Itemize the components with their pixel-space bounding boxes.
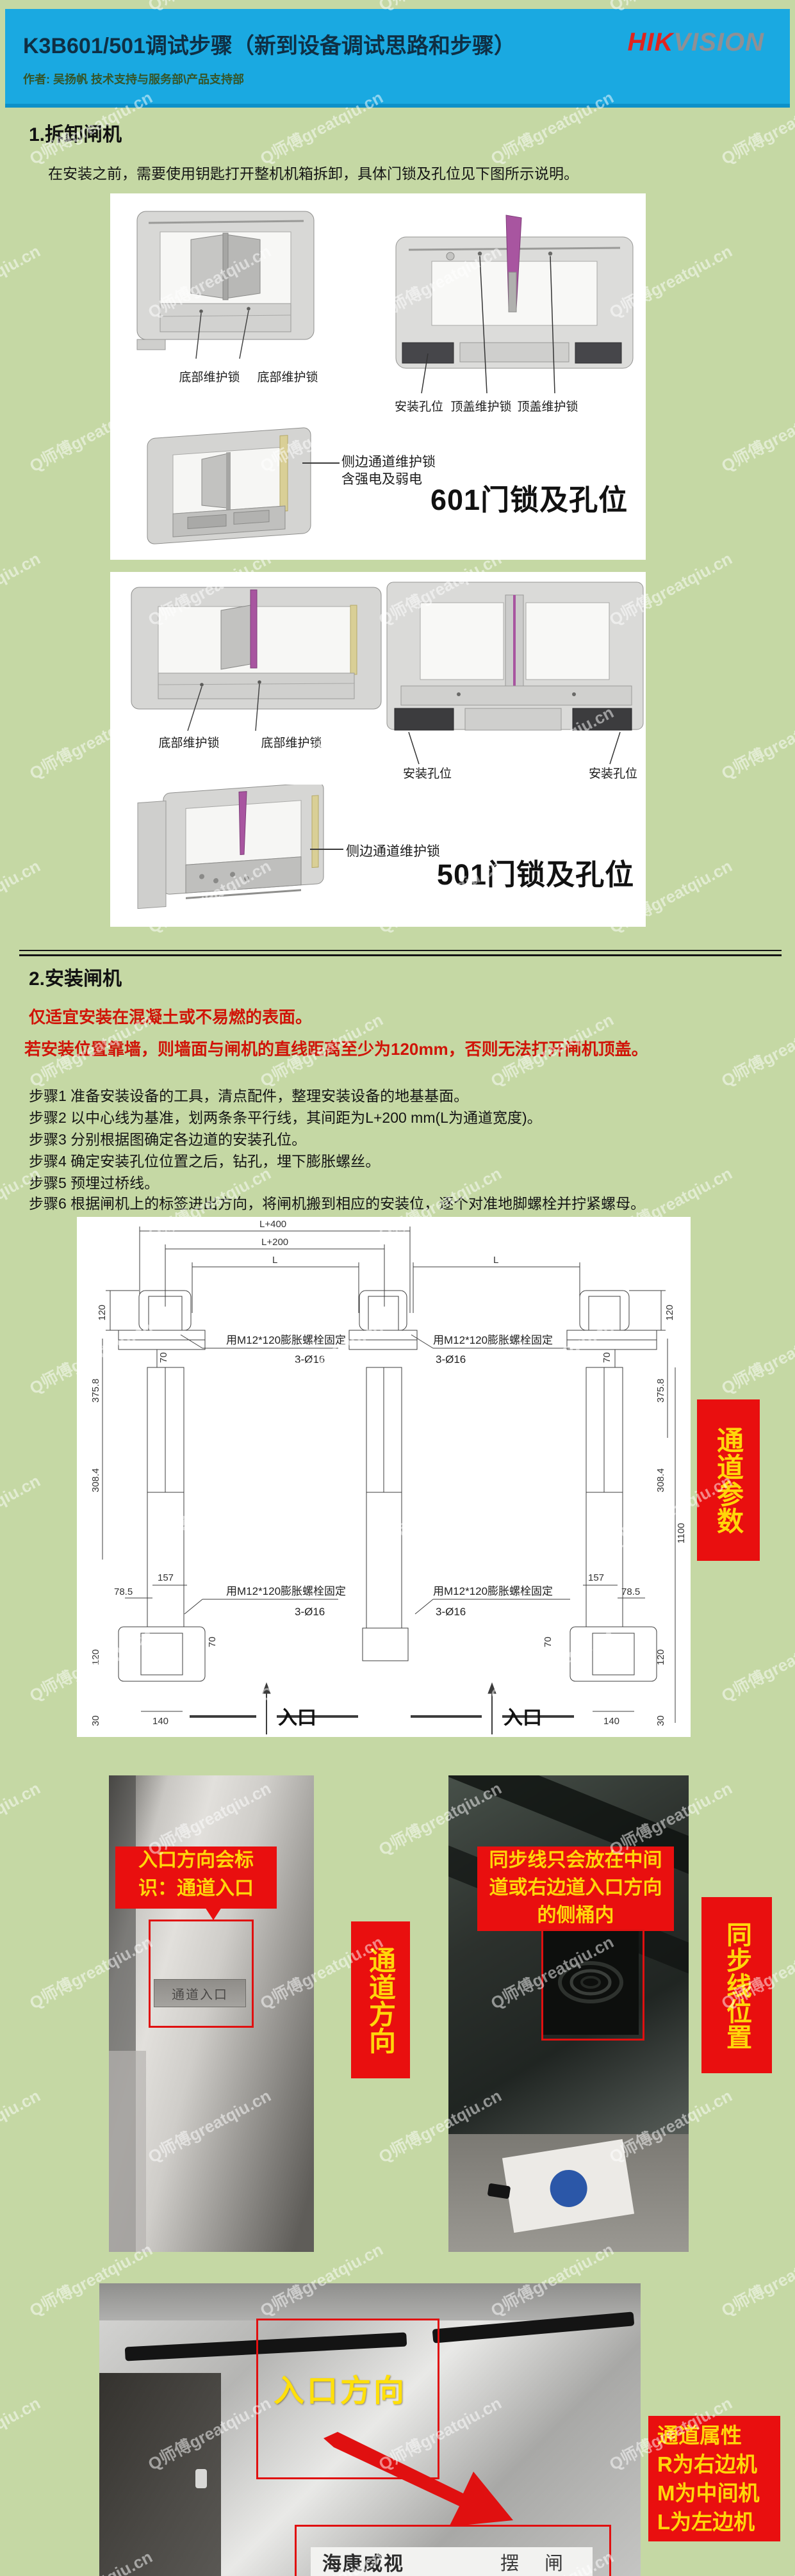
dim-70-top-left: 70 — [158, 1352, 169, 1363]
author-line: 作者: 吴扬帆 技术支持与服务部\产品支持部 — [23, 70, 244, 87]
dim-70-bot-right: 70 — [543, 1636, 553, 1647]
section1-intro: 在安装之前，需要使用钥匙打开整机机箱拆卸，具体门锁及孔位见下图所示说明。 — [48, 161, 578, 183]
anchor-note-br: 用M12*120膨胀螺栓固定 — [433, 1585, 553, 1597]
cad-diagram-panel: L+400 L+200 L L 120 120 70 70 375.8 375.… — [77, 1217, 691, 1737]
attr-line1: 通道属性 — [657, 2421, 780, 2450]
header-band: K3B601/501调试步骤（新到设备调试思路和步骤） HIKVISION 作者… — [5, 9, 790, 108]
dim-30-left: 30 — [90, 1715, 101, 1726]
tag-channel-attribute: 通道属性 R为右边机 M为中间机 L为左边机 — [648, 2416, 780, 2541]
photo-entry-direction: 入口方向会标 识：通道入口 通道入口 — [109, 1775, 314, 2252]
watermark-text: Q师傅greatqiu.cn — [717, 1622, 795, 1706]
photo-bg-floor — [109, 2051, 146, 2252]
gate-501-bottom-illustration — [382, 577, 648, 769]
watermark-text: Q师傅greatqiu.cn — [0, 2390, 44, 2475]
photo-door-hinge — [195, 2469, 207, 2488]
hole-note-bl: 3-Ø16 — [295, 1606, 325, 1618]
entry-dir-label: 入口方向 — [274, 2365, 407, 2410]
photo-sync-line: 同步线只会放在中间 道或右边道入口方向 的侧桶内 — [448, 1775, 689, 2252]
watermark-text: Q师傅greatqiu.cn — [717, 1007, 795, 1091]
pointer-line-side-lock-601 — [302, 462, 340, 464]
label-501-bottom-lock-left: 底部维护锁 — [158, 733, 220, 751]
dim-120-bot-left: 120 — [90, 1649, 101, 1665]
red-arrow-icon — [311, 2431, 529, 2539]
dim-120-top-right: 120 — [664, 1305, 675, 1321]
watermark-text: Q师傅greatqiu.cn — [717, 1314, 795, 1399]
watermark-text: Q师傅greatqiu.cn — [717, 2544, 795, 2576]
section2-heading: 2.安装闸机 — [29, 963, 122, 991]
attr-line2: R为右边机 — [657, 2450, 780, 2479]
hikvision-logo: HIKVISION — [628, 28, 764, 57]
entrance-left: 入口 — [278, 1708, 316, 1729]
paper-logo-icon — [547, 2167, 589, 2210]
step-4: 步骤4 确定安装孔位位置之后，钻孔，埋下膨胀螺丝。 — [29, 1149, 380, 1171]
watermark-text: Q师傅greatqiu.cn — [0, 853, 44, 938]
dim-308-left: 308.4 — [90, 1468, 101, 1492]
logo-hik: HIK — [628, 28, 674, 56]
watermark-text: Q师傅greatqiu.cn — [0, 2083, 44, 2167]
entrance-right: 入口 — [504, 1708, 542, 1729]
gate-501-front-illustration — [125, 580, 388, 733]
watermark-text: Q师傅greatqiu.cn — [0, 1775, 44, 1860]
label-501-install-hole-right: 安装孔位 — [587, 764, 639, 781]
dim-157-right: 157 — [588, 1572, 604, 1583]
gate-501-perspective-illustration — [125, 785, 343, 920]
callout-sync-line1: 同步线只会放在中间 — [477, 1846, 674, 1874]
highlight-sync-bucket — [541, 1929, 644, 2041]
watermark-text: Q师傅greatqiu.cn — [717, 699, 795, 784]
logo-vision: VISION — [673, 28, 764, 56]
label-601-install-hole: 安装孔位 — [394, 397, 444, 414]
caption-501: 501门锁及孔位 — [437, 851, 634, 893]
dim-120-top-left: 120 — [97, 1305, 108, 1321]
page-title: K3B601/501调试步骤（新到设备调试思路和步骤） — [23, 28, 516, 60]
highlight-entry-plate — [149, 1920, 254, 2028]
gate-word-text: 摆 闸 — [500, 2548, 573, 2575]
dim-l200: L+200 — [261, 1237, 288, 1248]
step-2: 步骤2 以中心线为基准，划两条条平行线，其间距为L+200 mm(L为通道宽度)… — [29, 1105, 542, 1127]
dim-140-left: 140 — [152, 1716, 168, 1727]
label-601-bottom-lock-right: 底部维护锁 — [257, 368, 318, 385]
panel-501: 底部维护锁 底部维护锁 安装孔位 安装孔位 — [110, 572, 646, 927]
document-page: K3B601/501调试步骤（新到设备调试思路和步骤） HIKVISION 作者… — [0, 0, 795, 2576]
label-501-bottom-lock-right: 底部维护锁 — [261, 733, 322, 751]
callout-pointer-icon — [205, 1907, 222, 1920]
photo-top-ceiling — [99, 2283, 641, 2320]
step-6: 步骤6 根据闸机上的标签进出方向，将闸机搬到相应的安装位，逐个对准地脚螺栓并拧紧… — [29, 1191, 645, 1213]
anchor-note-tl: 用M12*120膨胀螺栓固定 — [226, 1334, 346, 1346]
dim-120-bot-right: 120 — [655, 1649, 666, 1665]
attr-line4: L为左边机 — [657, 2507, 780, 2536]
photo-gate-label: 入口方向 海康威视 摆 闸 — [99, 2283, 641, 2576]
dim-70-bot-left: 70 — [207, 1636, 218, 1647]
tag-sync-position: 同步线位置 — [701, 1897, 772, 2073]
hole-note-br: 3-Ø16 — [436, 1606, 466, 1618]
watermark-text: Q师傅greatqiu.cn — [0, 546, 44, 630]
brand-label-sticker: 海康威视 摆 闸 — [311, 2547, 593, 2576]
dim-785-left: 78.5 — [114, 1586, 133, 1597]
label-601-top-lock-1: 顶盖维护锁 — [450, 397, 512, 414]
section-divider — [19, 950, 782, 956]
label-601-side-lock: 侧边通道维护锁 含强电及弱电 — [341, 453, 436, 488]
gate-601-perspective-illustration — [138, 415, 327, 556]
warning-wall-distance: 若安装位置靠墙，则墙面与闸机的直线距离至少为120mm，否则无法打开闸机顶盖。 — [24, 1036, 648, 1060]
dim-375-right: 375.8 — [655, 1378, 666, 1403]
callout-entry-line2: 识：通道入口 — [115, 1875, 277, 1903]
dim-l400: L+400 — [259, 1219, 286, 1230]
callout-entry-direction: 入口方向会标 识：通道入口 — [115, 1846, 277, 1909]
pointer-line-side-lock-501 — [310, 849, 343, 850]
hole-note-tr: 3-Ø16 — [436, 1353, 466, 1365]
dim-157-left: 157 — [158, 1572, 174, 1583]
caption-601: 601门锁及孔位 — [430, 477, 628, 518]
callout-entry-line1: 入口方向会标 — [115, 1846, 277, 1875]
warning-surface: 仅适宜安装在混凝土或不易燃的表面。 — [29, 1004, 312, 1028]
callout-sync-line3: 的侧桶内 — [477, 1902, 674, 1929]
cad-diagram: L+400 L+200 L L 120 120 70 70 375.8 375.… — [77, 1217, 691, 1737]
step-3: 步骤3 分别根据图确定各边道的安装孔位。 — [29, 1127, 306, 1149]
callout-sync-line2: 道或右边道入口方向 — [477, 1874, 674, 1902]
dim-l-right: L — [493, 1255, 498, 1266]
panel-601: 底部维护锁 底部维护锁 安装孔位 顶盖维护锁 顶盖维护锁 — [110, 193, 646, 560]
label-601-side-lock-line1: 侧边通道维护锁 — [341, 453, 436, 471]
step-1: 步骤1 准备安装设备的工具，清点配件，整理安装设备的地基基面。 — [29, 1084, 468, 1105]
dim-375-left: 375.8 — [90, 1378, 101, 1403]
step-5: 步骤5 预埋过桥线。 — [29, 1171, 159, 1193]
attr-line3: M为中间机 — [657, 2479, 780, 2507]
label-601-top-lock-2: 顶盖维护锁 — [516, 397, 579, 414]
tag-channel-direction: 通道方向 — [351, 1921, 410, 2078]
hole-note-tl: 3-Ø16 — [295, 1353, 325, 1365]
label-601-bottom-lock-left: 底部维护锁 — [179, 368, 240, 385]
anchor-note-tr: 用M12*120膨胀螺栓固定 — [433, 1334, 553, 1346]
dim-140-right: 140 — [603, 1716, 619, 1727]
label-601-side-lock-line2: 含强电及弱电 — [341, 471, 436, 488]
watermark-text: Q师傅greatqiu.cn — [0, 1468, 44, 1553]
gate-601-front-illustration — [129, 202, 322, 363]
cable-coil-icon — [543, 1931, 639, 2035]
section1-heading: 1.拆卸闸机 — [29, 118, 122, 147]
watermark-text: Q师傅greatqiu.cn — [0, 238, 44, 323]
dim-30-right: 30 — [655, 1715, 666, 1726]
dim-785-right: 78.5 — [621, 1586, 640, 1597]
gate-601-top-illustration — [389, 211, 639, 397]
dim-1100: 1100 — [676, 1523, 687, 1544]
dim-70-top-right: 70 — [602, 1352, 612, 1363]
brand-text: 海康威视 — [322, 2548, 404, 2576]
entry-plate: 通道入口 — [154, 1979, 246, 2007]
dim-308-right: 308.4 — [655, 1468, 666, 1492]
tag-channel-params: 通道参数 — [697, 1399, 760, 1561]
label-501-install-hole-left: 安装孔位 — [402, 764, 453, 781]
entry-plate-text: 通道入口 — [172, 1984, 228, 2003]
dim-l-left: L — [272, 1255, 277, 1266]
label-501-side-lock: 侧边通道维护锁 — [346, 841, 440, 860]
anchor-note-bl: 用M12*120膨胀螺栓固定 — [226, 1585, 346, 1597]
watermark-text: Q师傅greatqiu.cn — [717, 2237, 795, 2321]
callout-sync-line: 同步线只会放在中间 道或右边道入口方向 的侧桶内 — [477, 1846, 674, 1931]
watermark-text: Q师傅greatqiu.cn — [717, 392, 795, 477]
